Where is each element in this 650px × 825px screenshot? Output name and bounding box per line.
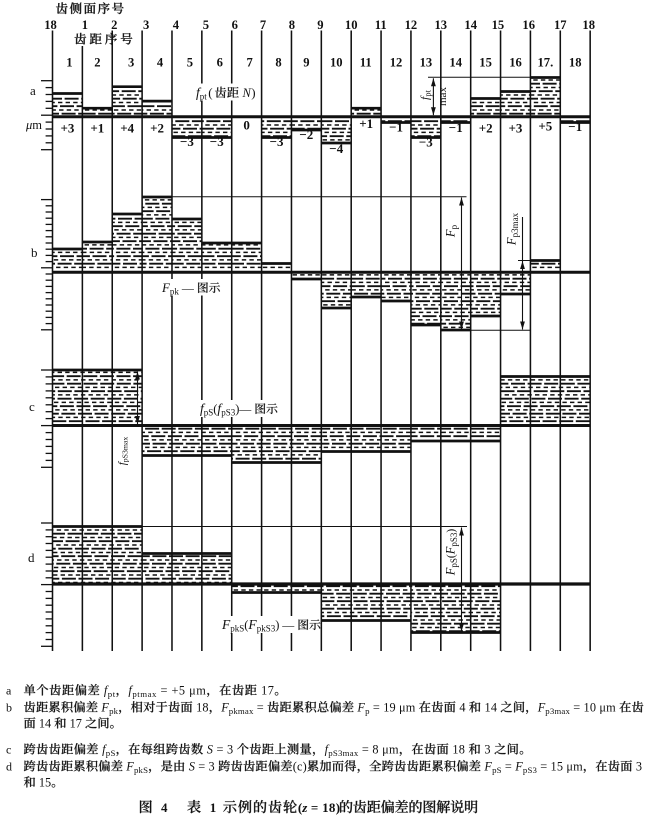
svg-text:−3: −3 xyxy=(270,134,284,149)
svg-text:0: 0 xyxy=(243,118,250,133)
svg-text:17: 17 xyxy=(258,684,275,698)
svg-text:3: 3 xyxy=(128,56,134,70)
svg-text:1: 1 xyxy=(82,18,88,32)
svg-text:7: 7 xyxy=(260,18,266,32)
svg-text:(: ( xyxy=(208,85,212,100)
svg-text:11: 11 xyxy=(375,18,387,32)
svg-text:p3max: p3max xyxy=(510,212,520,237)
svg-text:18: 18 xyxy=(449,743,468,757)
svg-text:pS3: pS3 xyxy=(449,532,459,547)
svg-text:F: F xyxy=(356,701,365,715)
svg-text:15: 15 xyxy=(492,18,505,32)
svg-text:8: 8 xyxy=(289,18,295,32)
svg-text:pS3max: pS3max xyxy=(121,437,130,463)
svg-text:17.: 17. xyxy=(538,56,554,70)
svg-text:F: F xyxy=(100,701,109,715)
svg-text:18: 18 xyxy=(569,56,582,70)
svg-text:+2: +2 xyxy=(479,121,493,136)
svg-text:−1: −1 xyxy=(568,119,582,134)
svg-text:2: 2 xyxy=(94,56,100,70)
svg-text:+5: +5 xyxy=(538,119,552,134)
svg-text:18: 18 xyxy=(44,18,57,32)
svg-text:=: = xyxy=(254,701,268,715)
svg-text:= 8 μm: = 8 μm xyxy=(359,743,399,757)
svg-text:b: b xyxy=(6,701,12,715)
svg-text:): ) xyxy=(446,529,458,533)
svg-text:pt: pt xyxy=(423,89,433,96)
svg-text:b: b xyxy=(31,245,38,260)
svg-text:3: 3 xyxy=(633,760,643,774)
svg-text:): ) xyxy=(251,85,255,100)
svg-text:8: 8 xyxy=(275,56,281,70)
svg-text:pS: pS xyxy=(492,765,502,775)
svg-text:a: a xyxy=(30,83,36,98)
svg-text:pS: pS xyxy=(204,408,214,418)
svg-text:11: 11 xyxy=(360,56,372,70)
svg-text:13: 13 xyxy=(435,18,448,32)
svg-text:17: 17 xyxy=(67,717,85,731)
svg-text:= 19 μm: = 19 μm xyxy=(370,701,419,715)
svg-text:p3max: p3max xyxy=(545,706,570,716)
svg-text:10: 10 xyxy=(330,56,343,70)
svg-text:pkmax: pkmax xyxy=(229,706,254,716)
svg-text:F: F xyxy=(444,229,458,238)
svg-text:12: 12 xyxy=(390,56,403,70)
svg-text:16: 16 xyxy=(509,56,522,70)
svg-text:14: 14 xyxy=(36,717,54,731)
svg-text:1: 1 xyxy=(210,800,217,815)
svg-text:pS3: pS3 xyxy=(523,765,538,775)
svg-text:pkS3: pkS3 xyxy=(257,624,276,634)
svg-text:12: 12 xyxy=(405,18,418,32)
svg-text:= 3: = 3 xyxy=(195,760,218,774)
svg-text:=: = xyxy=(502,760,516,774)
svg-text:4: 4 xyxy=(456,701,469,715)
svg-text:2: 2 xyxy=(111,18,117,32)
svg-text:F: F xyxy=(125,760,134,774)
svg-text:pk: pk xyxy=(109,706,119,716)
svg-text:17: 17 xyxy=(554,18,567,32)
svg-text:6: 6 xyxy=(232,18,238,32)
svg-text:pt: pt xyxy=(108,689,116,699)
svg-text:3: 3 xyxy=(143,18,149,32)
svg-text:3: 3 xyxy=(481,743,494,757)
svg-text:−4: −4 xyxy=(329,141,343,156)
svg-text:−1: −1 xyxy=(389,120,403,135)
svg-text:−3: −3 xyxy=(419,135,433,150)
svg-text:14: 14 xyxy=(481,701,500,715)
svg-text:μ: μ xyxy=(25,118,32,132)
svg-text:pS: pS xyxy=(449,558,459,568)
svg-text:—: — xyxy=(179,281,197,295)
svg-text:—: — xyxy=(279,618,297,632)
svg-text:−3: −3 xyxy=(180,134,194,149)
svg-text:5: 5 xyxy=(203,18,209,32)
svg-text:d: d xyxy=(6,760,12,774)
svg-text:= 10 μm: = 10 μm xyxy=(570,701,619,715)
svg-text:+3: +3 xyxy=(61,121,75,136)
svg-text:= +5 μm: = +5 μm xyxy=(157,684,206,698)
svg-text:4: 4 xyxy=(173,18,180,32)
svg-text:a: a xyxy=(6,684,12,698)
svg-text:F: F xyxy=(505,237,519,246)
svg-text:+2: +2 xyxy=(150,121,164,136)
svg-text:+1: +1 xyxy=(359,116,373,131)
svg-text:= 3: = 3 xyxy=(213,743,237,757)
svg-text:—: — xyxy=(238,402,254,416)
svg-text:4: 4 xyxy=(157,56,164,70)
svg-text:18: 18 xyxy=(582,18,595,32)
svg-text:pkS: pkS xyxy=(134,765,148,775)
svg-text:−3: −3 xyxy=(210,134,224,149)
svg-text:= 15 μm: = 15 μm xyxy=(537,760,583,774)
svg-text:+3: +3 xyxy=(509,121,523,136)
svg-text:13: 13 xyxy=(420,56,433,70)
svg-text:= 18): = 18) xyxy=(307,800,340,815)
svg-text:c: c xyxy=(6,743,11,757)
svg-text:max: max xyxy=(437,87,449,106)
svg-text:pkS: pkS xyxy=(230,624,244,634)
svg-text:18: 18 xyxy=(193,701,209,715)
svg-text:c: c xyxy=(29,399,35,414)
svg-text:N: N xyxy=(242,86,252,100)
svg-text:+4: +4 xyxy=(120,121,134,136)
svg-text:m: m xyxy=(32,118,42,132)
svg-text:d: d xyxy=(28,550,35,565)
svg-text:10: 10 xyxy=(345,18,358,32)
svg-text:4: 4 xyxy=(161,800,168,815)
svg-text:F: F xyxy=(514,760,523,774)
svg-text:6: 6 xyxy=(217,56,223,70)
svg-text:pS3max: pS3max xyxy=(328,748,359,758)
svg-text:16: 16 xyxy=(522,18,535,32)
svg-text:pS3: pS3 xyxy=(221,408,236,418)
svg-text:−2: −2 xyxy=(299,127,313,142)
svg-text:(c): (c) xyxy=(293,760,307,774)
svg-text:F: F xyxy=(483,760,492,774)
svg-text:pS: pS xyxy=(106,748,116,758)
svg-text:15: 15 xyxy=(36,776,51,790)
svg-text:15: 15 xyxy=(479,56,492,70)
svg-text:p: p xyxy=(449,224,459,229)
svg-text:14: 14 xyxy=(449,56,462,70)
svg-text:+1: +1 xyxy=(90,121,104,136)
svg-text:pt: pt xyxy=(200,92,208,102)
svg-text:14: 14 xyxy=(464,18,477,32)
svg-text:9: 9 xyxy=(303,56,309,70)
svg-text:ptmax: ptmax xyxy=(132,689,157,699)
svg-text:7: 7 xyxy=(247,56,253,70)
svg-text:5: 5 xyxy=(187,56,193,70)
svg-text:−1: −1 xyxy=(449,120,463,135)
svg-text:9: 9 xyxy=(317,18,323,32)
svg-text:1: 1 xyxy=(66,56,72,70)
